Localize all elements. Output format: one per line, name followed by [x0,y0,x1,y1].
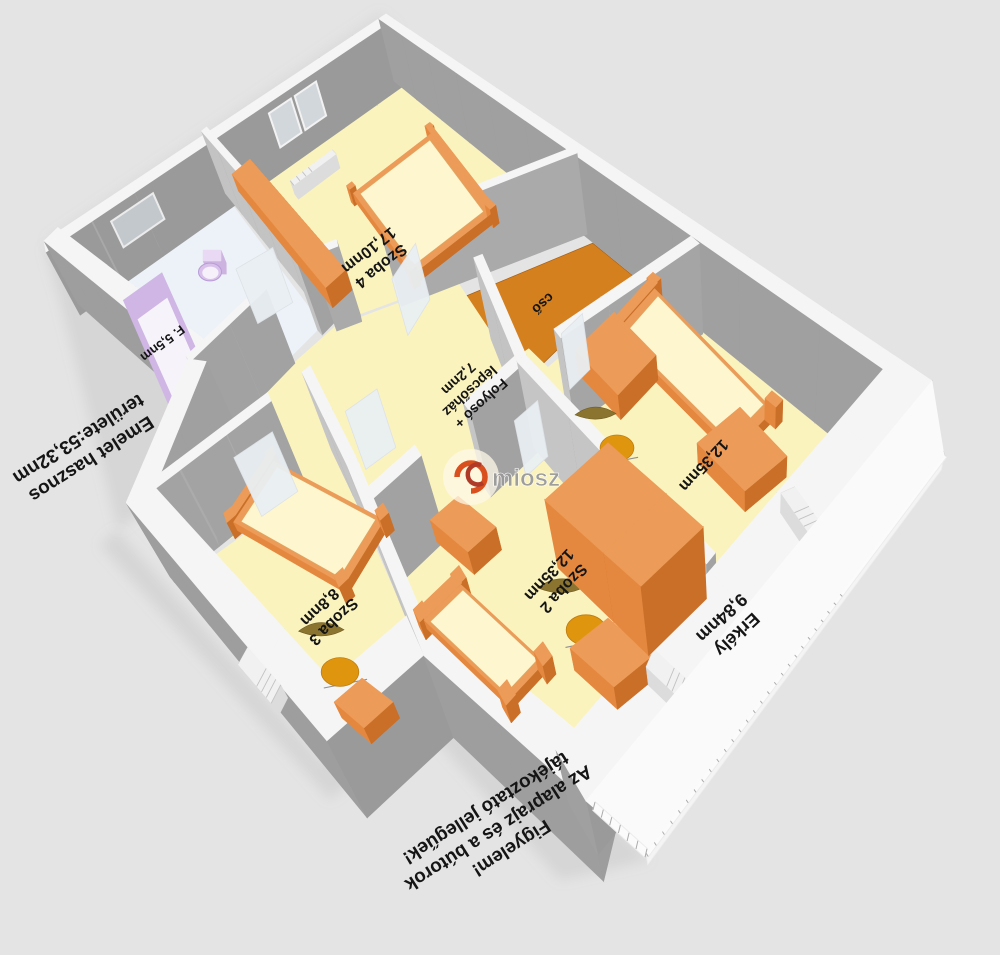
svg-text:miosz: miosz [492,465,560,492]
